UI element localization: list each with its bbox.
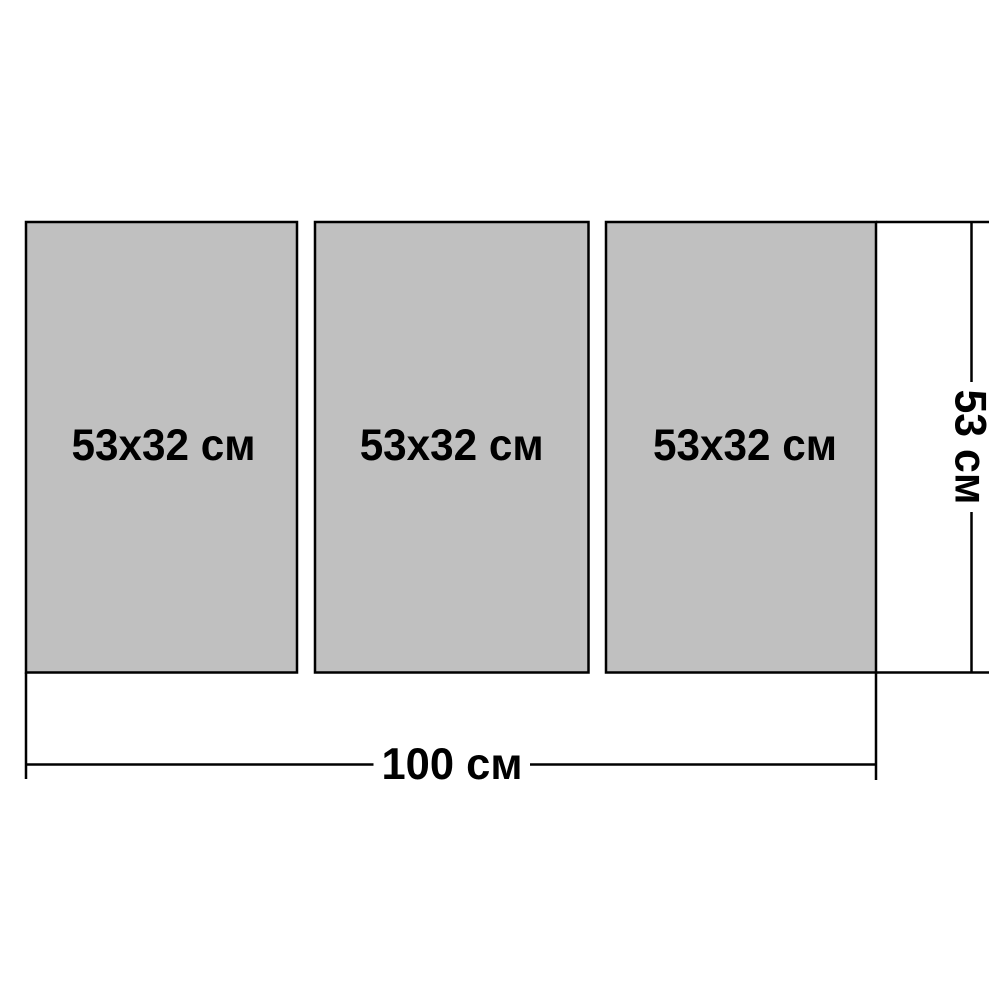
svg-text:53x32 см: 53x32 см [653, 421, 837, 470]
svg-text:53 см: 53 см [946, 390, 995, 505]
svg-text:53x32 см: 53x32 см [72, 421, 256, 470]
svg-text:53x32 см: 53x32 см [360, 421, 544, 470]
svg-text:100 см: 100 см [382, 740, 523, 789]
